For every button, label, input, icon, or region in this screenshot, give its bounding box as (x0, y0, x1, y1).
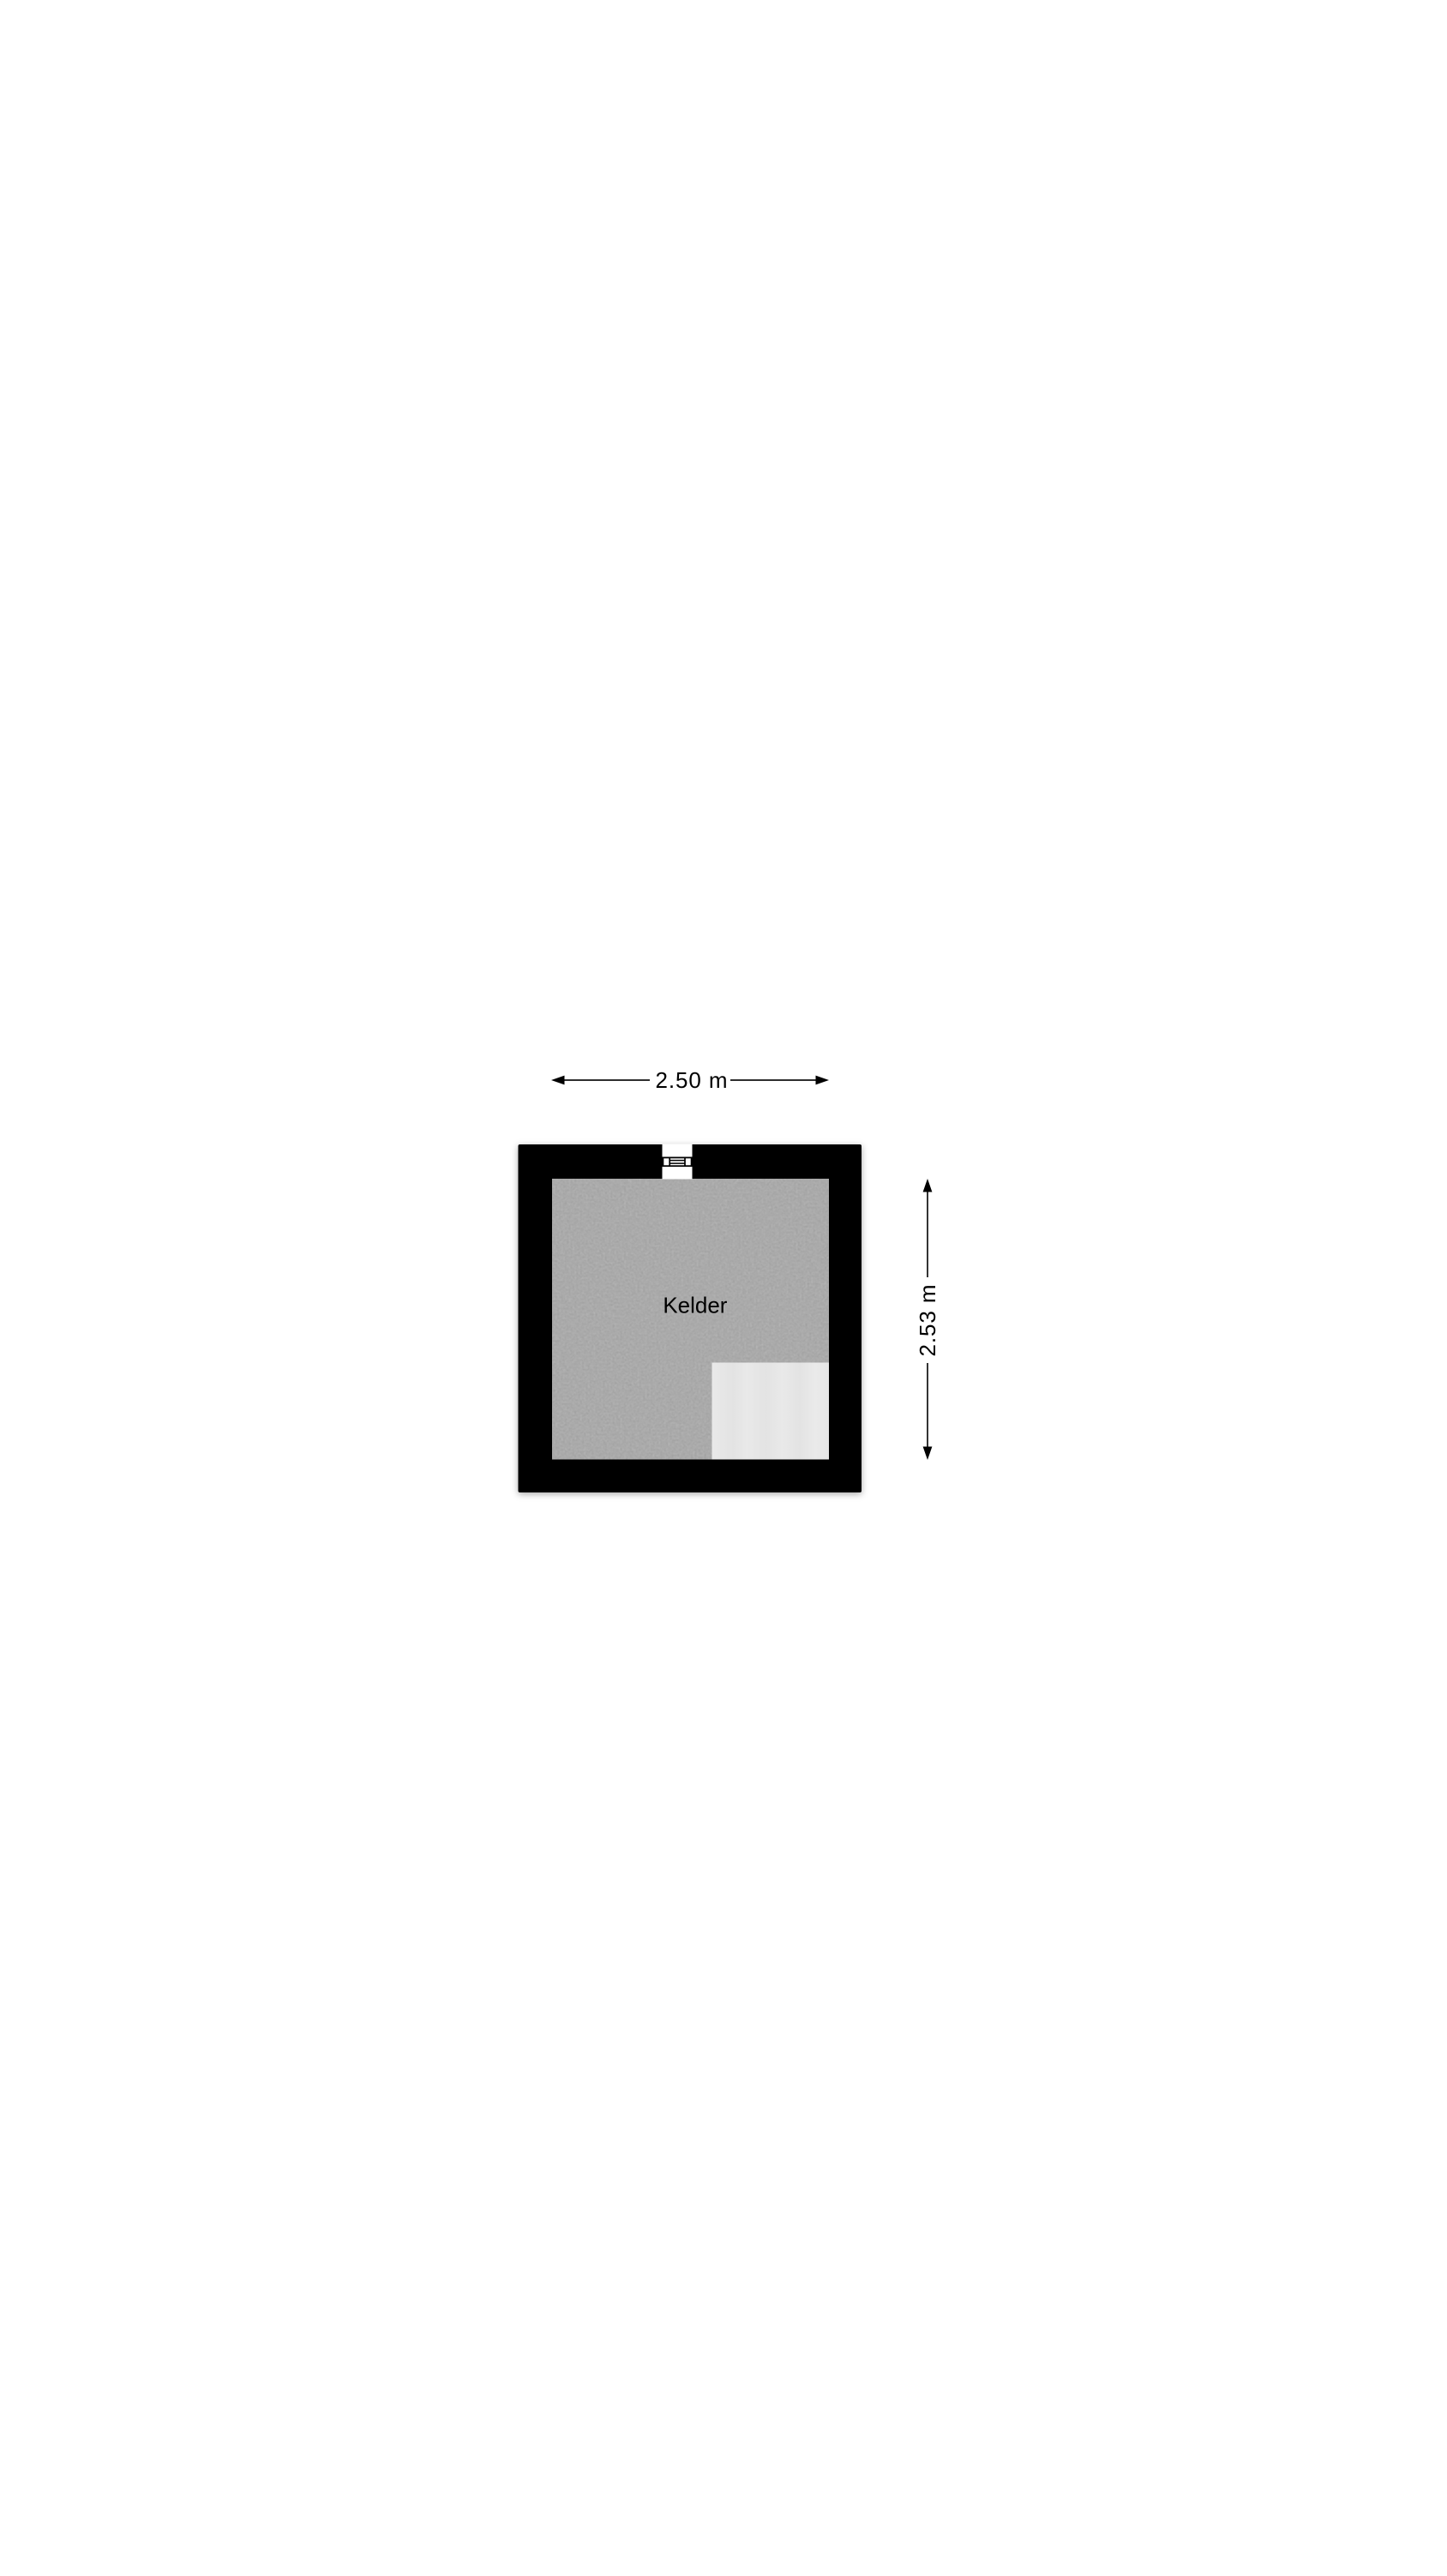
svg-text:2.53 m: 2.53 m (915, 1284, 940, 1357)
svg-text:Kelder: Kelder (663, 1292, 727, 1318)
svg-text:2.50 m: 2.50 m (656, 1067, 729, 1093)
